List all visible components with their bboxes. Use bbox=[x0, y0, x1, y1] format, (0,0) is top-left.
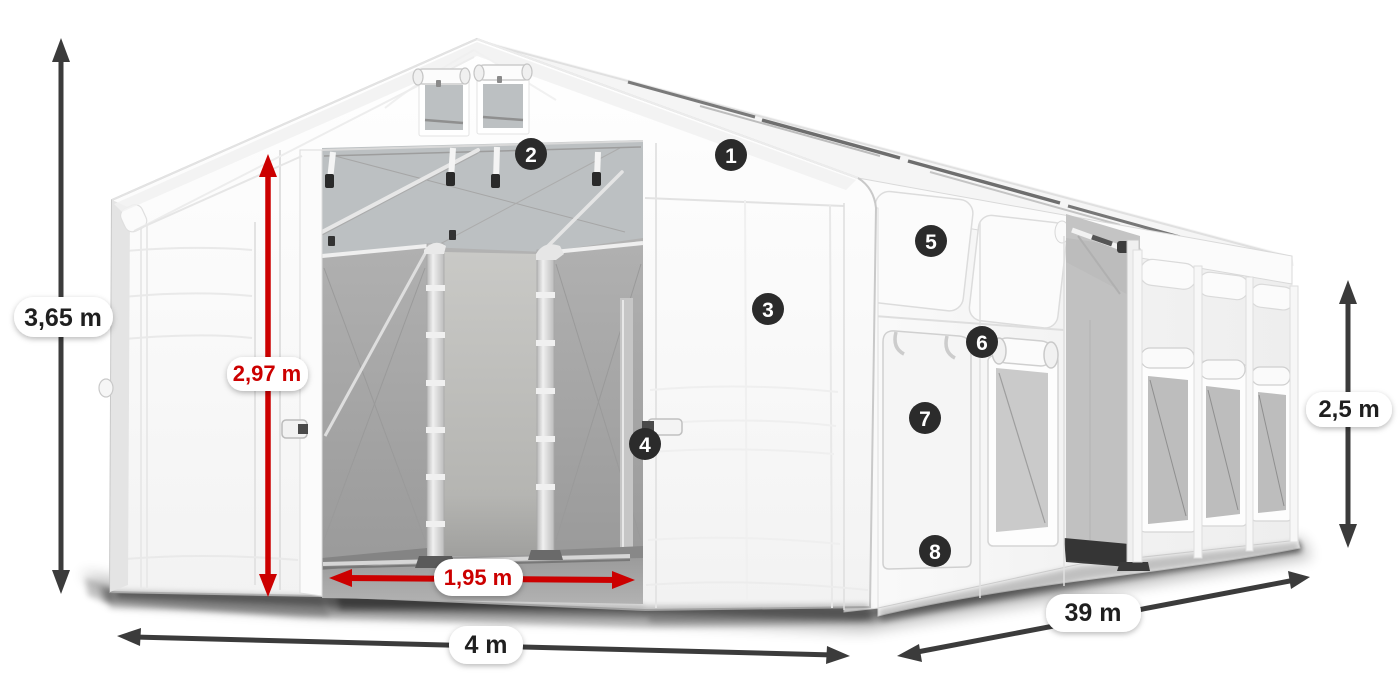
svg-text:4: 4 bbox=[639, 434, 651, 457]
svg-text:3: 3 bbox=[762, 299, 774, 322]
svg-text:7: 7 bbox=[919, 408, 931, 431]
svg-text:1,95 m: 1,95 m bbox=[444, 565, 513, 590]
svg-text:39 m: 39 m bbox=[1065, 599, 1122, 627]
svg-text:4 m: 4 m bbox=[464, 631, 507, 659]
svg-text:5: 5 bbox=[925, 231, 937, 254]
svg-text:8: 8 bbox=[929, 541, 941, 564]
svg-text:3,65 m: 3,65 m bbox=[24, 304, 102, 332]
svg-text:2,5 m: 2,5 m bbox=[1318, 396, 1379, 423]
svg-text:2: 2 bbox=[525, 144, 537, 167]
svg-text:6: 6 bbox=[976, 332, 988, 355]
svg-text:1: 1 bbox=[725, 145, 737, 168]
svg-text:2,97 m: 2,97 m bbox=[233, 361, 302, 386]
